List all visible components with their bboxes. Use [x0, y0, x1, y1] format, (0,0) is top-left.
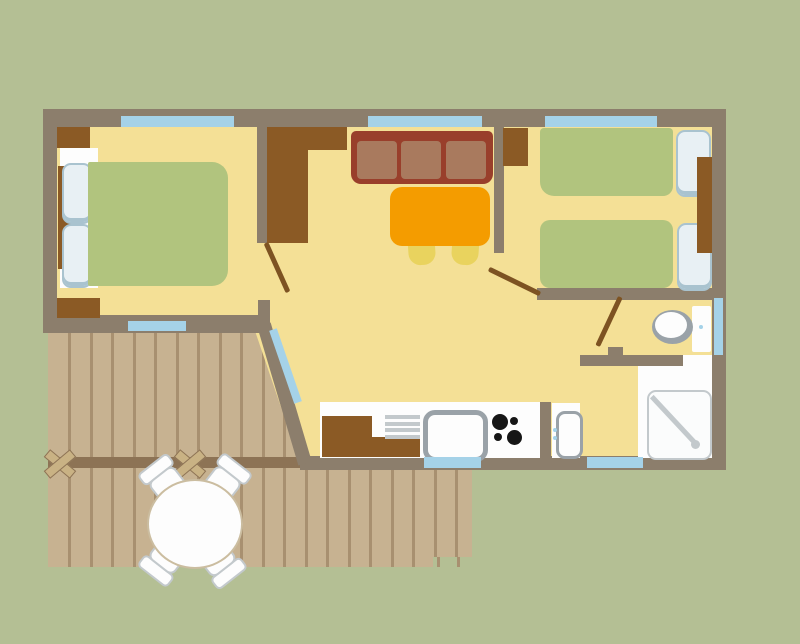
hob-burner [510, 417, 518, 425]
shower-room-floor [683, 355, 712, 366]
window-bathroom-right [714, 298, 723, 355]
toilet-tank [692, 306, 711, 352]
wall-bathroom [580, 355, 683, 366]
deck-plank-line [90, 333, 93, 567]
deck-cross-brace-icon [176, 450, 202, 476]
patio-round-table [147, 479, 243, 569]
washbasin-tap [553, 436, 557, 440]
twin-bed [540, 220, 673, 288]
kitchen-cabinet [322, 437, 420, 457]
drainboard-line [385, 415, 420, 419]
deck-plank-line [111, 333, 114, 567]
window-bedroom2-top [545, 116, 657, 127]
shower-tray [647, 390, 712, 460]
shower-drain [691, 440, 700, 449]
window-bedroom1-top [121, 116, 234, 127]
washbasin [556, 411, 583, 459]
window-bathroom-bottom [587, 457, 643, 468]
hob-burner [492, 414, 508, 430]
bedroom2-cabinet [503, 128, 528, 166]
bedroom1-cabinet-bottom [57, 298, 100, 318]
deck-plank-line [262, 333, 265, 567]
deck-plank-line [133, 333, 136, 567]
dining-table [390, 187, 490, 246]
window-kitchen-bottom [424, 457, 481, 468]
deck-cross-brace-icon [46, 450, 72, 476]
hob-burner [494, 433, 502, 441]
living-cabinet [308, 127, 347, 150]
wall-stub [258, 300, 270, 333]
living-wardrobe [267, 127, 308, 243]
sofa-cushion [357, 141, 397, 179]
drainboard-line [385, 435, 420, 439]
sofa-cushion [446, 141, 486, 179]
toilet-bowl-inner [655, 312, 687, 338]
wall-bathroom-doorpost [608, 347, 623, 356]
floor-plan [0, 0, 800, 644]
wall-kitchen-divider [540, 402, 551, 458]
sofa-cushion [401, 141, 441, 179]
toilet-flush-button [699, 325, 703, 329]
kitchen-sink [423, 410, 488, 462]
washbasin-tap [553, 428, 557, 432]
drainboard-line [385, 422, 420, 426]
bedroom1-cabinet-top [57, 127, 90, 148]
drainboard-line [385, 428, 420, 432]
deck-step [457, 557, 460, 567]
hob-burner [507, 430, 522, 445]
twin-bed [540, 128, 673, 196]
nightstand [697, 157, 712, 253]
window-living-top [368, 116, 482, 127]
double-bed [88, 162, 228, 286]
wall-left [43, 109, 57, 333]
window-bedroom1-bottom [128, 321, 186, 331]
deck-step [437, 557, 440, 567]
